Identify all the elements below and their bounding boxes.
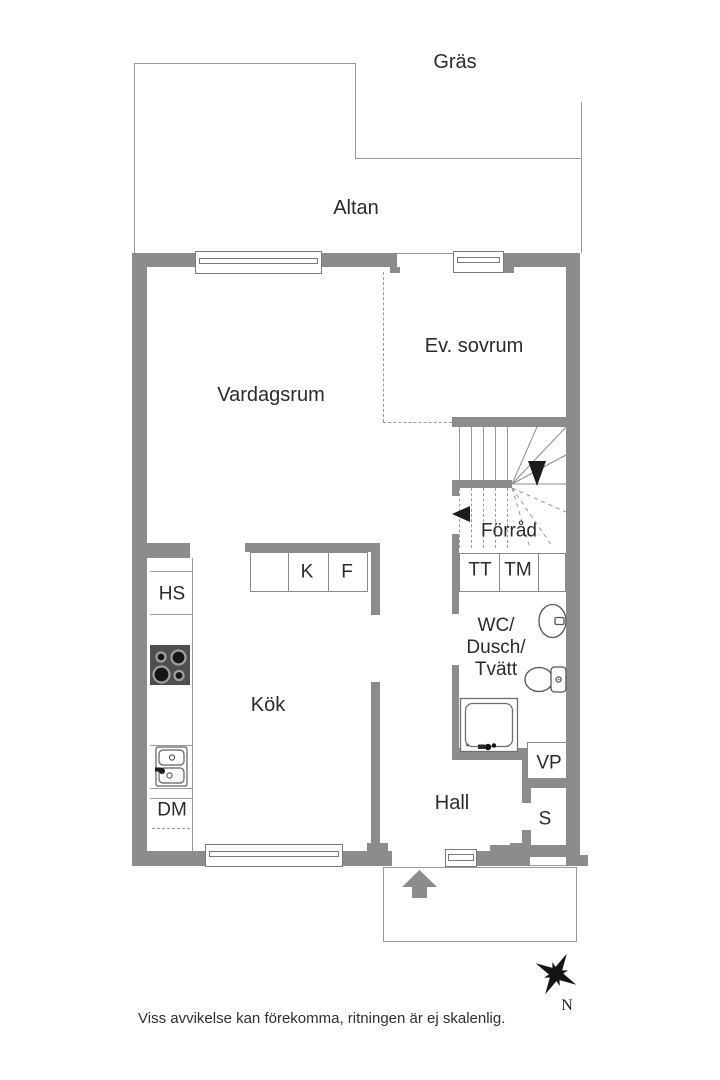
altan-door-opening xyxy=(397,253,453,267)
kitchen-hall-divider-wall xyxy=(371,682,380,851)
stair-landing-wall xyxy=(452,480,512,488)
stair-down-arrow-icon xyxy=(528,461,546,486)
stair-winder-lines xyxy=(512,427,566,484)
area-label-altan: Altan xyxy=(333,197,379,219)
fixture-label-frys: F xyxy=(341,563,353,584)
stair-tread-line xyxy=(495,427,496,480)
disclaimer-text: Viss avvikelse kan förekomma, ritningen … xyxy=(138,1010,505,1027)
vp-s-divider-wall xyxy=(523,778,570,788)
kf-cabinet-top-wall xyxy=(245,543,380,552)
bathroom-south-wall xyxy=(452,748,523,760)
understair-dashed-tread xyxy=(471,488,472,548)
plot-line-top xyxy=(134,63,356,64)
compass-rose-icon xyxy=(525,943,587,1005)
utility-left-wall-lower xyxy=(452,665,459,760)
fixture-label-s: S xyxy=(539,810,552,831)
s-closet-left-stub xyxy=(522,830,531,851)
room-label-forrad: Förråd xyxy=(481,522,537,543)
fixture-label-tt: TT xyxy=(468,561,491,582)
window-glass-line xyxy=(199,258,318,264)
utility-left-wall-upper xyxy=(452,534,459,614)
wc-label-line1: WC/ xyxy=(466,615,525,637)
fixture-label-vp: VP xyxy=(536,754,561,775)
wall-notch-right xyxy=(504,267,514,273)
plot-line-right xyxy=(581,102,582,253)
counter-front-edge-line xyxy=(192,558,193,851)
wall-notch-left xyxy=(390,267,400,273)
cabinet-divider xyxy=(288,552,289,592)
counter-divider-line xyxy=(150,571,192,572)
understair-dashed-tread xyxy=(459,488,460,548)
window-glass-line xyxy=(457,257,500,263)
appliance-divider xyxy=(538,553,539,592)
divider-wall-foot xyxy=(367,843,388,851)
toilet-icon xyxy=(525,667,566,692)
cabinet-divider xyxy=(328,552,329,592)
stair-tread-line xyxy=(459,427,460,480)
room-label-ev-sovrum: Ev. sovrum xyxy=(425,335,524,357)
fixture-label-tm: TM xyxy=(504,561,531,582)
area-label-gras: Gräs xyxy=(433,51,476,73)
s-closet-left-stub-foot xyxy=(510,843,522,851)
ev-sovrum-dashed-boundary-vertical xyxy=(383,272,384,422)
window-glass-line xyxy=(209,851,339,857)
wc-label-line2: Dusch/ xyxy=(466,637,525,659)
counter-divider-line xyxy=(150,745,192,746)
room-label-wc-dusch-tvatt: WC/ Dusch/ Tvätt xyxy=(466,615,525,681)
compass-north-label: N xyxy=(561,997,573,1015)
stair-tread-line xyxy=(471,427,472,480)
ev-sovrum-dashed-boundary-horizontal xyxy=(383,422,452,423)
stair-tread-line xyxy=(483,427,484,480)
wall-right xyxy=(566,253,580,866)
plot-line-step-horizontal xyxy=(355,158,582,159)
room-label-kok: Kök xyxy=(251,694,285,716)
facade-niche xyxy=(530,857,566,866)
stair-tread-line xyxy=(507,427,508,480)
entry-porch xyxy=(383,867,577,942)
stair-left-arrow-icon xyxy=(452,506,470,522)
kf-cabinet-right-wall xyxy=(371,543,380,615)
fixture-label-hs: HS xyxy=(159,585,185,606)
plot-line-left xyxy=(134,63,135,253)
wall-left xyxy=(132,253,147,866)
wall-right-foot xyxy=(580,855,588,866)
room-label-vardagsrum: Vardagsrum xyxy=(217,384,324,406)
kitchen-north-wall-stub xyxy=(147,543,190,558)
counter-divider-line xyxy=(150,788,192,789)
stair-top-wall xyxy=(452,417,566,427)
shower-icon xyxy=(461,699,518,752)
washbasin-icon xyxy=(539,605,566,638)
dishwasher-dashed-line xyxy=(152,828,190,829)
appliance-divider xyxy=(499,553,500,592)
vector-overlay xyxy=(0,0,720,1080)
fixture-label-dm: DM xyxy=(157,801,187,822)
sink-icon xyxy=(155,747,187,786)
fixture-label-kyl: K xyxy=(301,563,314,584)
stove-icon xyxy=(150,645,190,685)
entry-door-panel xyxy=(448,854,474,861)
room-label-hall: Hall xyxy=(435,792,469,814)
counter-divider-line xyxy=(150,614,192,615)
plot-line-step-vertical xyxy=(355,63,356,159)
floor-plan-canvas: Gräs Altan Vardagsrum Ev. sovrum Förråd … xyxy=(0,0,720,1080)
altan-opening-threshold-line xyxy=(397,253,453,254)
stair-left-wall-stub-upper xyxy=(452,480,459,496)
wc-label-line3: Tvätt xyxy=(466,659,525,681)
